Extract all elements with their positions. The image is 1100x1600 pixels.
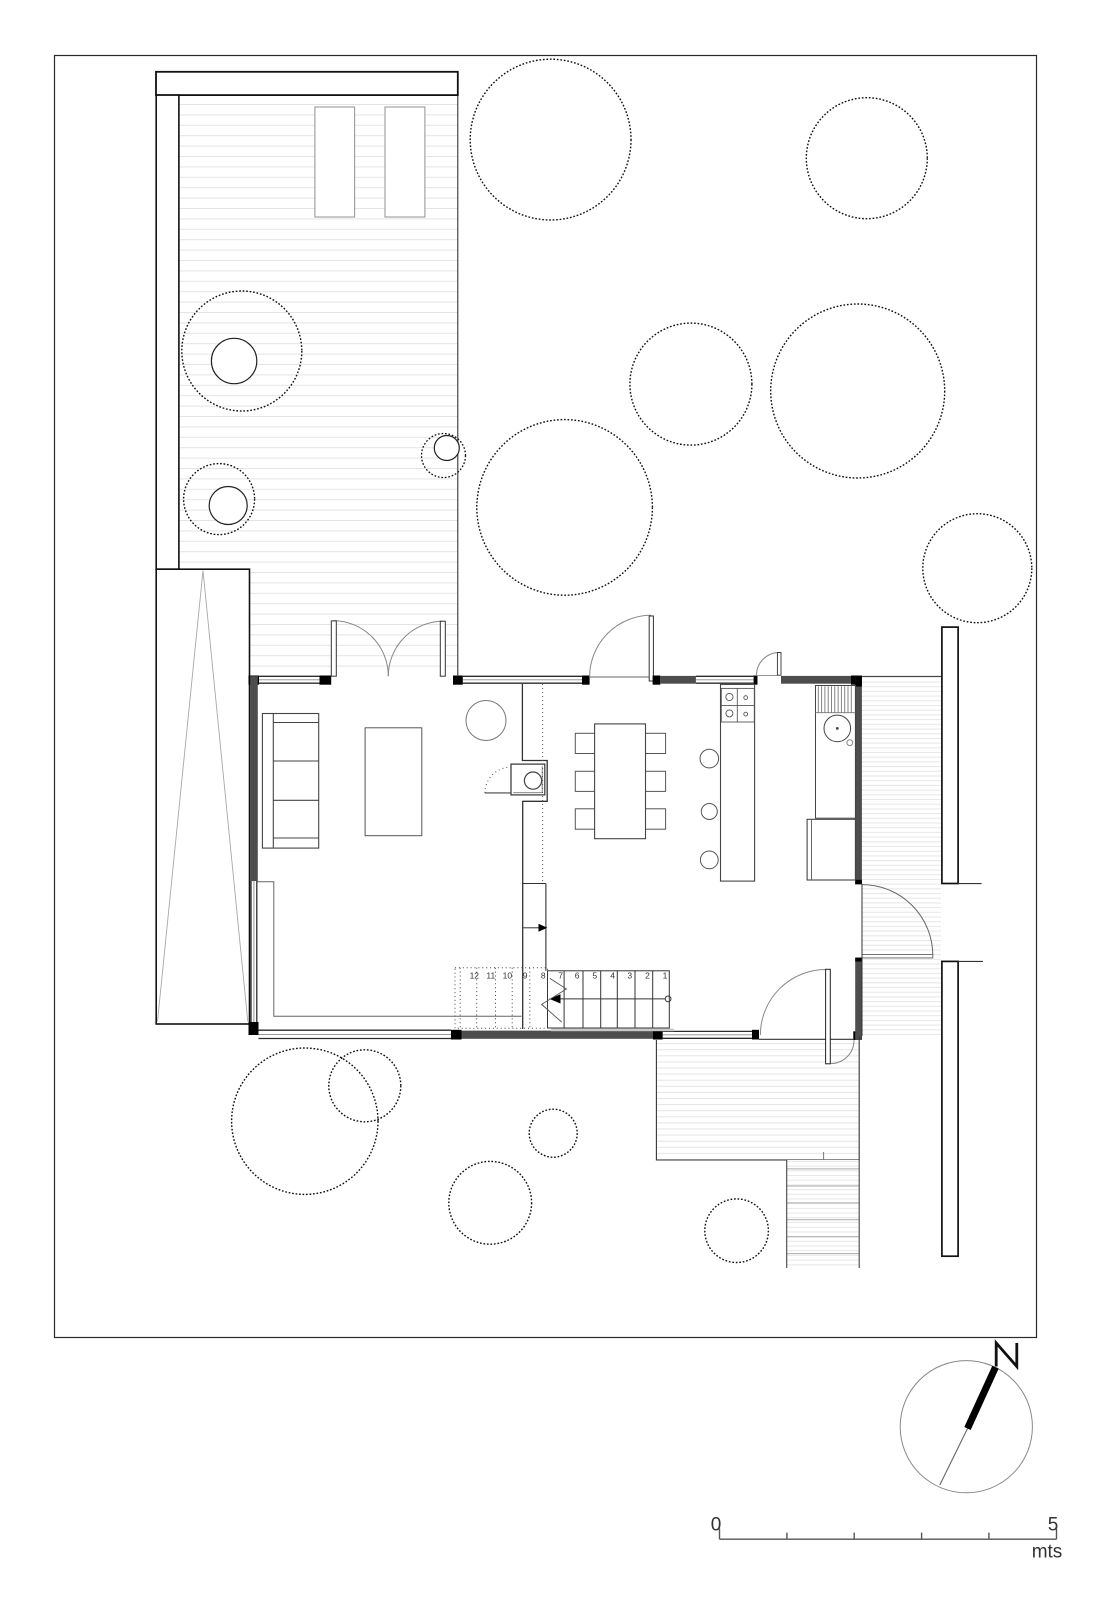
- svg-text:5: 5: [1048, 1515, 1059, 1536]
- svg-text:9: 9: [523, 971, 528, 981]
- svg-text:12: 12: [470, 971, 480, 981]
- svg-text:2: 2: [645, 971, 650, 981]
- svg-text:7: 7: [558, 971, 563, 981]
- svg-text:10: 10: [503, 971, 513, 981]
- svg-text:5: 5: [592, 971, 597, 981]
- svg-text:1: 1: [663, 971, 668, 981]
- svg-text:6: 6: [575, 971, 580, 981]
- svg-text:mts: mts: [1032, 1542, 1063, 1563]
- svg-text:11: 11: [486, 971, 495, 981]
- svg-text:3: 3: [627, 971, 632, 981]
- svg-text:0: 0: [711, 1515, 722, 1536]
- svg-text:8: 8: [541, 971, 546, 981]
- svg-text:4: 4: [610, 971, 615, 981]
